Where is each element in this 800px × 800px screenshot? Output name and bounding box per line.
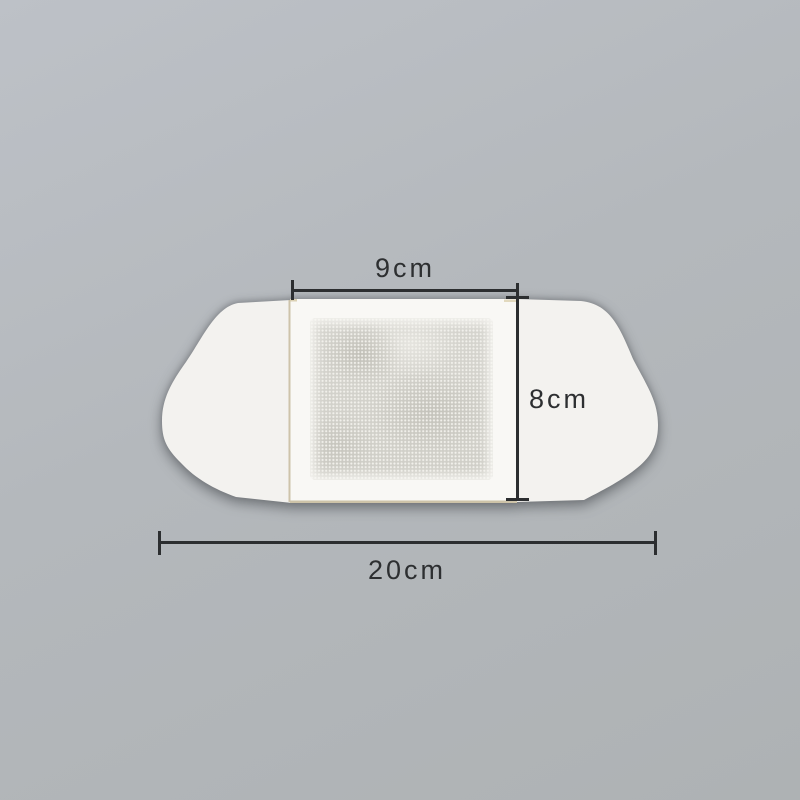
total-width-dimension-tick-right (654, 531, 657, 555)
height-dimension-tick-top (506, 296, 529, 299)
inner-width-dimension-line (293, 289, 517, 292)
height-dimension-tick-bottom (506, 498, 529, 501)
height-dimension-label: 8cm (529, 385, 589, 413)
inner-width-dimension-label: 9cm (345, 254, 465, 282)
adhesive-edge-bottom (290, 501, 517, 504)
product-photo-stage: 9cm 8cm 20cm (0, 0, 800, 800)
height-dimension-line (516, 283, 519, 501)
total-width-dimension-label: 20cm (347, 556, 467, 584)
absorbent-pad (310, 318, 493, 480)
total-width-dimension-tick-left (158, 531, 161, 555)
adhesive-edge-left (289, 300, 291, 502)
total-width-dimension-line (159, 541, 656, 544)
inner-width-dimension-tick-left (291, 280, 294, 300)
